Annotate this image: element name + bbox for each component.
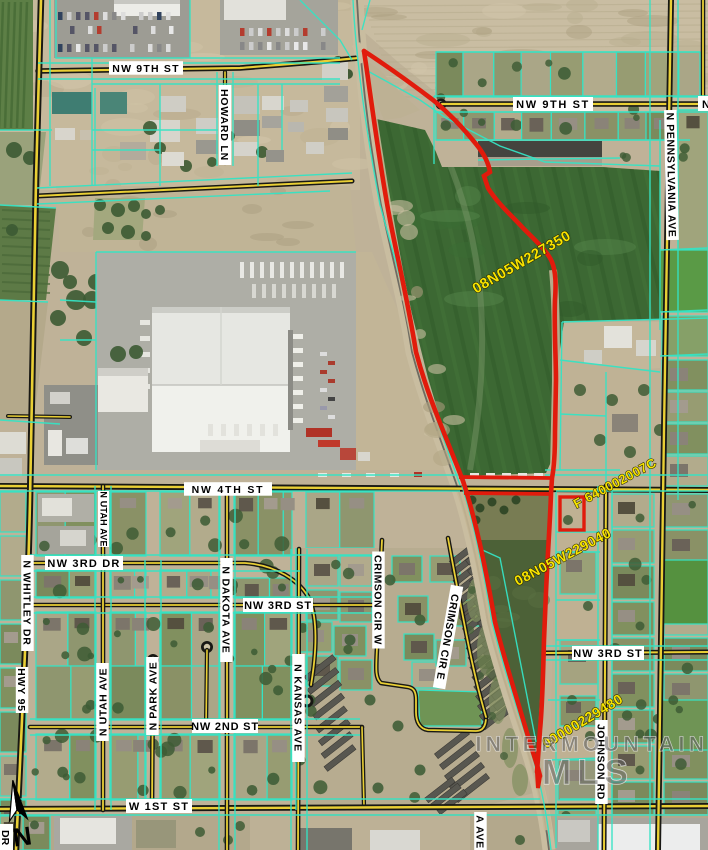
svg-text:HWY 95: HWY 95 — [15, 668, 27, 712]
svg-text:NW 3RD ST: NW 3RD ST — [244, 600, 312, 612]
svg-text:N PARK AVE: N PARK AVE — [147, 662, 159, 731]
svg-text:W 1ST ST: W 1ST ST — [129, 801, 189, 813]
svg-text:MLS: MLS — [542, 753, 634, 792]
svg-text:N KANSAS AVE: N KANSAS AVE — [292, 664, 304, 752]
svg-text:DR: DR — [0, 830, 11, 846]
svg-text:N DAKOTA AVE: N DAKOTA AVE — [220, 566, 232, 653]
svg-text:N PENNSYLVANIA AVE: N PENNSYLVANIA AVE — [664, 112, 678, 237]
svg-text:NW 2ND ST: NW 2ND ST — [191, 721, 259, 733]
svg-text:CRIMSON CIR W: CRIMSON CIR W — [372, 555, 384, 645]
svg-text:NW 9TH ST: NW 9TH ST — [112, 63, 179, 75]
svg-text:N WHITLEY DR: N WHITLEY DR — [21, 560, 33, 645]
svg-text:NW 9TH ST: NW 9TH ST — [516, 99, 590, 111]
svg-text:NW 4TH ST: NW 4TH ST — [192, 484, 265, 496]
svg-text:NW 3RD DR: NW 3RD DR — [47, 558, 120, 570]
svg-text:N: N — [702, 99, 708, 111]
svg-text:NW 3RD ST: NW 3RD ST — [573, 648, 643, 660]
svg-text:N UTAH AVE: N UTAH AVE — [97, 668, 109, 736]
svg-text:N UTAH AVE: N UTAH AVE — [98, 491, 108, 546]
svg-text:A AVE: A AVE — [474, 815, 486, 849]
svg-text:HOWARD LN: HOWARD LN — [218, 89, 230, 161]
